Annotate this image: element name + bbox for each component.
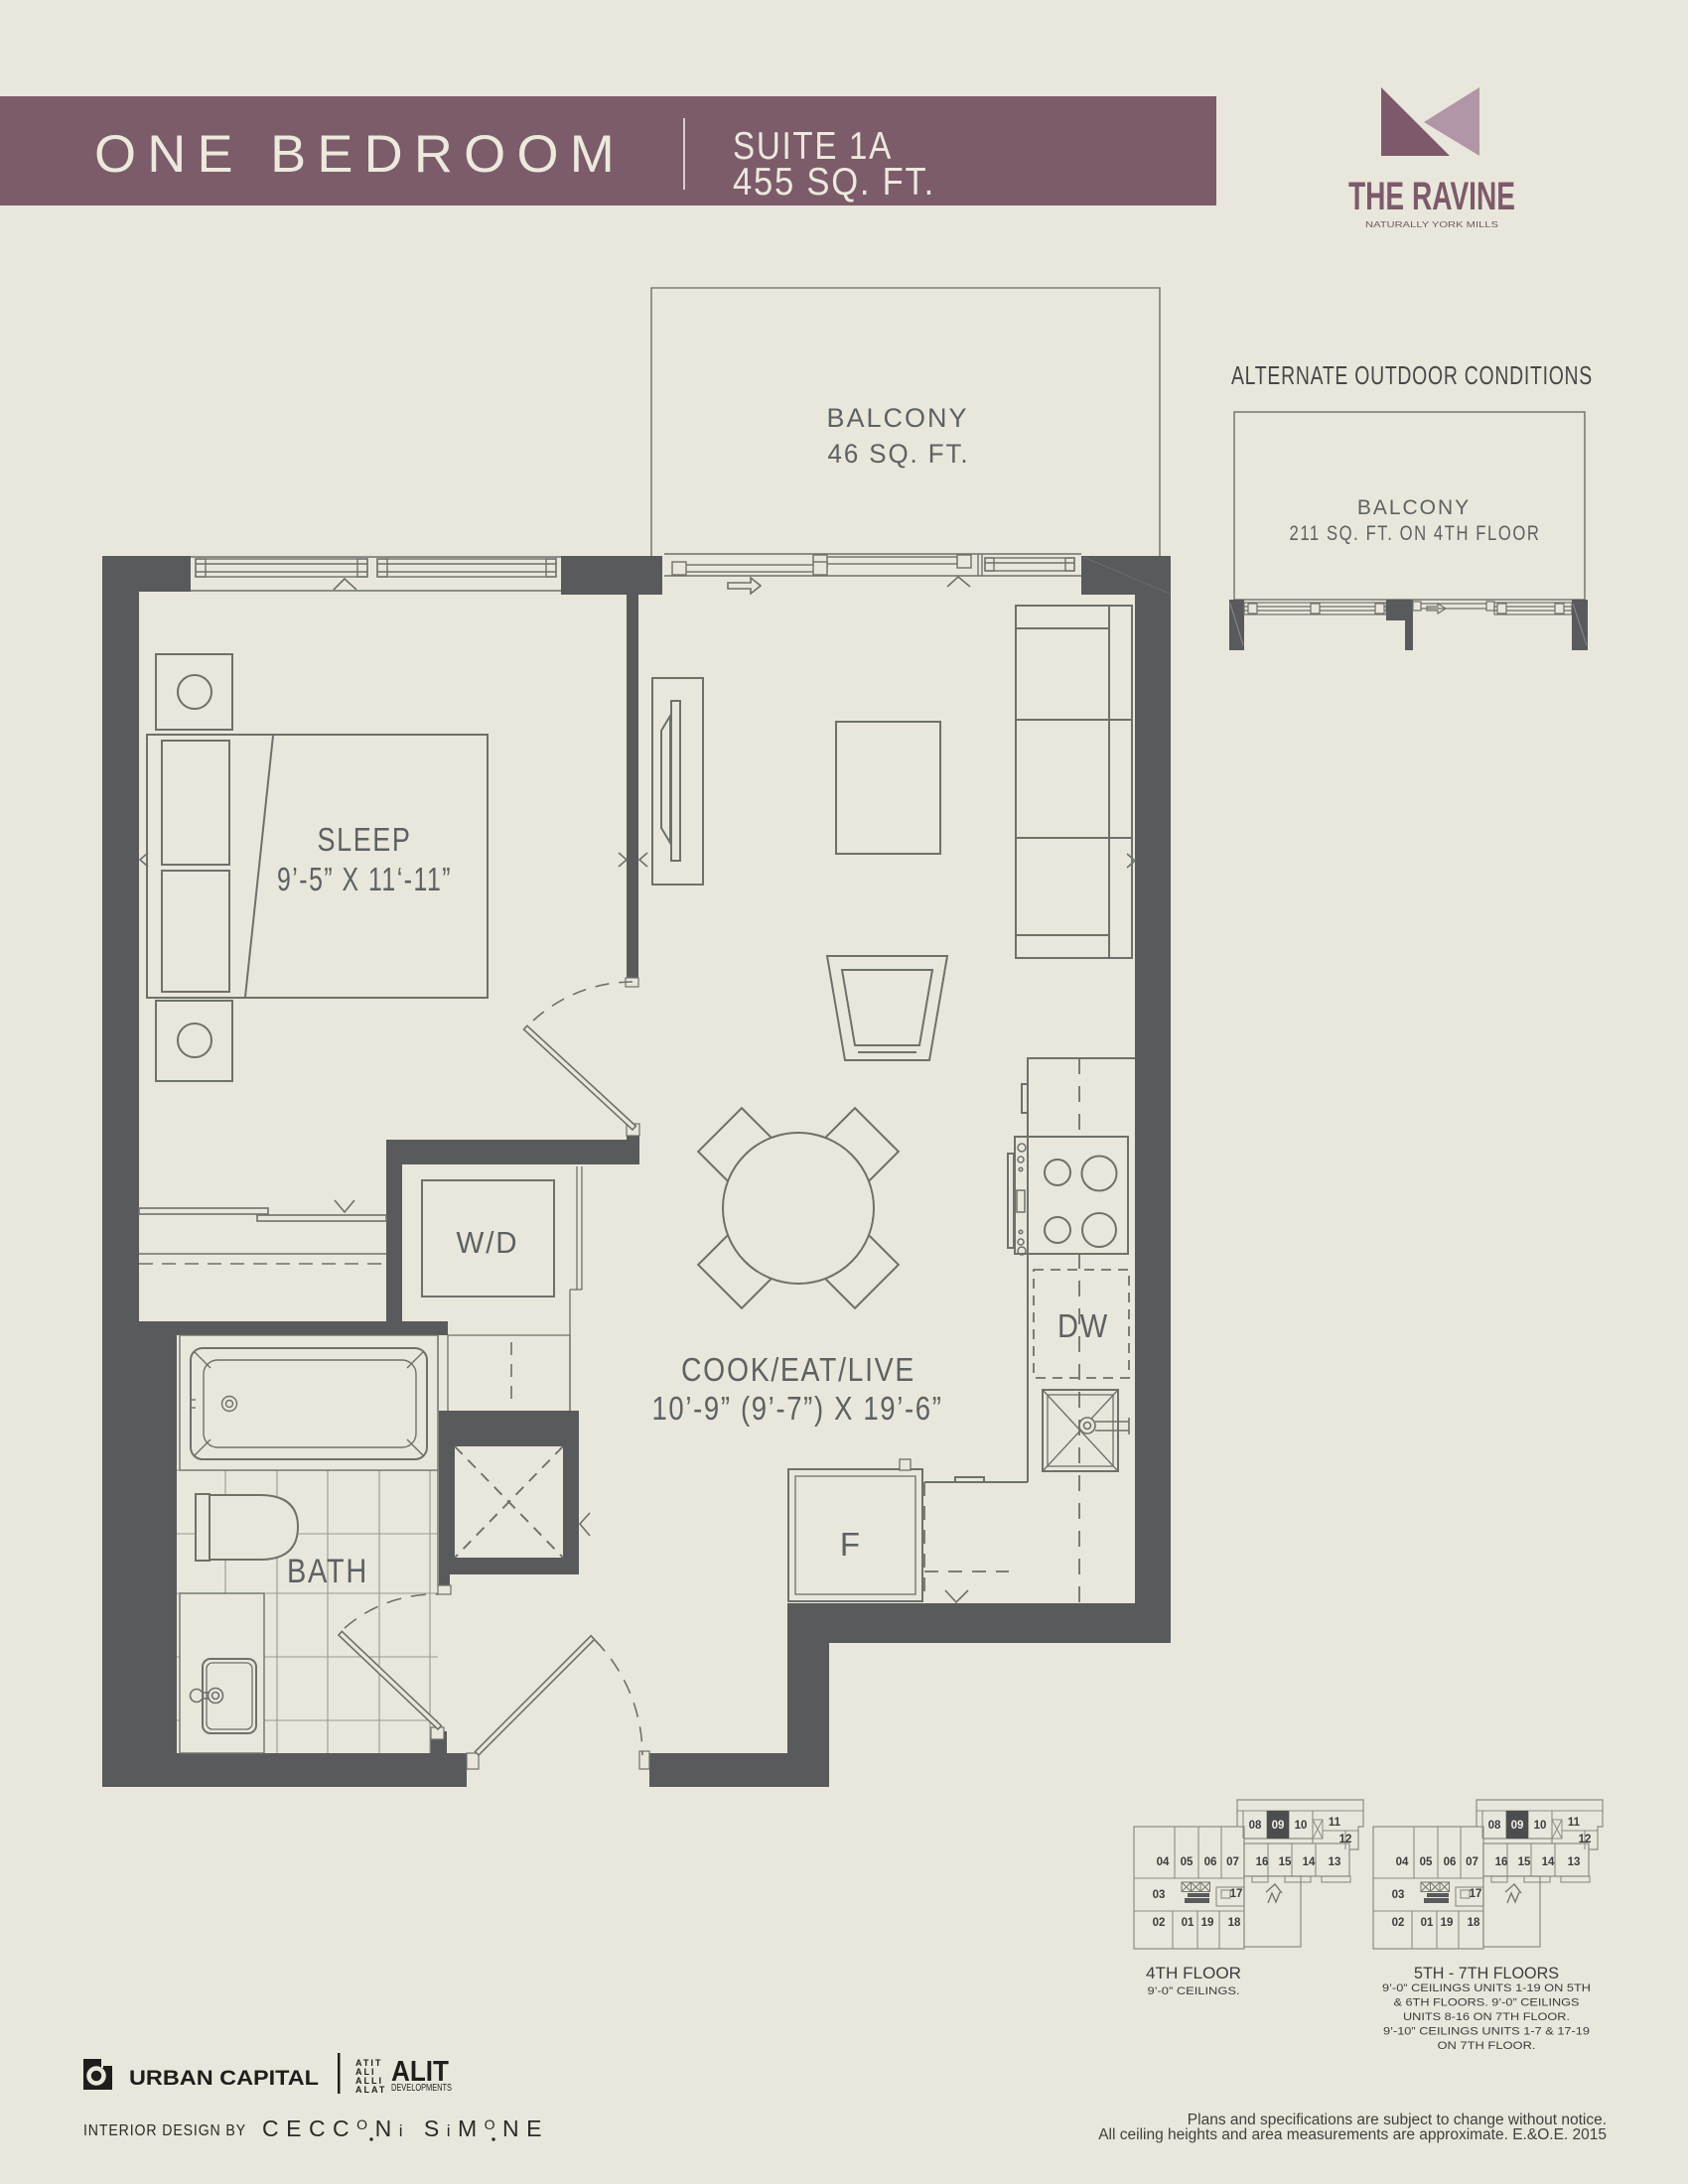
svg-text:10’-9” (9’-7”) X 19’-6”: 10’-9” (9’-7”) X 19’-6”	[652, 1390, 943, 1427]
svg-text:9’-5” X 11‘-11”: 9’-5” X 11‘-11”	[277, 861, 452, 897]
svg-text:COOK/EAT/LIVE: COOK/EAT/LIVE	[681, 1351, 915, 1388]
svg-text:UNITS 8-16 ON 7TH FLOOR.: UNITS 8-16 ON 7TH FLOOR.	[1403, 2011, 1570, 2023]
svg-text:SLEEP: SLEEP	[318, 821, 412, 858]
svg-text:All ceiling heights and area m: All ceiling heights and area measurement…	[1098, 2126, 1607, 2143]
svg-text:W/D: W/D	[457, 1225, 519, 1260]
svg-text:46 SQ. FT.: 46 SQ. FT.	[828, 439, 970, 469]
svg-text:& 6TH FLOORS. 9’-0” CEILINGS: & 6TH FLOORS. 9’-0” CEILINGS	[1394, 1997, 1580, 2009]
svg-text:5TH - 7TH FLOORS: 5TH - 7TH FLOORS	[1414, 1964, 1559, 1982]
svg-text:DW: DW	[1057, 1307, 1109, 1344]
svg-text:NATURALLY YORK MILLS: NATURALLY YORK MILLS	[1365, 219, 1498, 229]
svg-text:9’-0” CEILINGS UNITS 1-19 ON 5: 9’-0” CEILINGS UNITS 1-19 ON 5TH	[1382, 1982, 1591, 1994]
svg-text:455 SQ. FT.: 455 SQ. FT.	[733, 161, 935, 204]
svg-text:THE RAVINE: THE RAVINE	[1348, 175, 1515, 218]
svg-text:DEVELOPMENTS: DEVELOPMENTS	[391, 2083, 452, 2094]
svg-text:ALAT: ALAT	[355, 2085, 386, 2095]
svg-text:211 SQ. FT. ON 4TH FLOOR: 211 SQ. FT. ON 4TH FLOOR	[1290, 522, 1541, 545]
svg-text:F: F	[840, 1526, 862, 1563]
svg-text:BATH: BATH	[287, 1553, 368, 1590]
svg-text:INTERIOR DESIGN BY: INTERIOR DESIGN BY	[83, 2122, 246, 2139]
svg-text:4TH FLOOR: 4TH FLOOR	[1146, 1964, 1241, 1982]
svg-text:ONE BEDROOM: ONE BEDROOM	[94, 125, 626, 184]
svg-text:URBAN CAPITAL: URBAN CAPITAL	[129, 2067, 319, 2090]
svg-text:ON 7TH FLOOR.: ON 7TH FLOOR.	[1438, 2040, 1536, 2052]
svg-text:ALTERNATE OUTDOOR CONDITIONS: ALTERNATE OUTDOOR CONDITIONS	[1231, 360, 1593, 390]
svg-text:9’-0” CEILINGS.: 9’-0” CEILINGS.	[1148, 1985, 1240, 1997]
svg-text:BALCONY: BALCONY	[1357, 496, 1471, 519]
svg-text:9’-10” CEILINGS UNITS 1-7 & 17: 9’-10” CEILINGS UNITS 1-7 & 17-19	[1383, 2026, 1590, 2038]
svg-text:BALCONY: BALCONY	[827, 403, 969, 433]
